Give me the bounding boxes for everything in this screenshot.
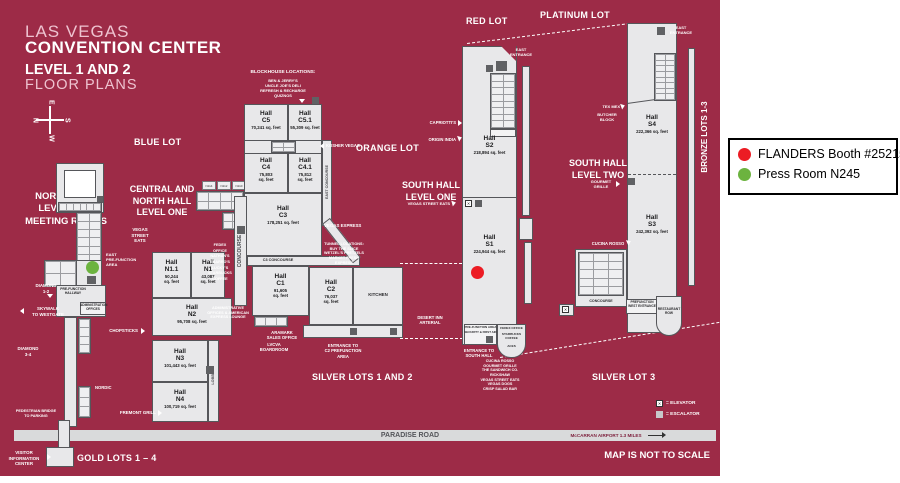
hall-c3-sqft: 178,251 sq. feet <box>246 221 320 226</box>
room-n114: N114 <box>202 181 216 190</box>
desert-inn-dash-bottom <box>400 338 463 339</box>
room-cell <box>273 148 283 152</box>
room-cell <box>609 262 622 269</box>
room-cell <box>504 75 515 81</box>
room-cell <box>492 115 503 121</box>
escalator-s3-left <box>628 178 635 185</box>
fedex-office-label: FEDEX OFFICE <box>497 327 526 331</box>
c1-service-rooms <box>254 316 288 327</box>
room-cell <box>273 143 283 147</box>
room-cell <box>80 337 89 344</box>
room-cell <box>656 72 665 77</box>
hall-n3-sqft: 101,443 sq. feet <box>152 364 208 369</box>
s3-s4-divider <box>628 174 676 175</box>
south-entrance-label: ENTRANCE TO SOUTH HALL <box>460 348 498 359</box>
room-n112: N112 <box>217 181 231 190</box>
hall-c4-1-sqft: 75,812 sq. feet <box>288 173 322 183</box>
room-cell <box>90 230 101 237</box>
desert-inn-dash-top <box>400 263 462 264</box>
room-cell <box>74 204 80 210</box>
capriottis-arrow-icon <box>458 120 462 126</box>
north-hall-corridor <box>64 317 77 427</box>
aramark-label: ARAMARK SALES OFFICE <box>262 330 302 341</box>
room-cell <box>90 214 101 221</box>
hall-s2-name: Hall S2 <box>462 136 517 150</box>
s1-s2-divider <box>462 197 517 198</box>
room-cell <box>580 254 593 261</box>
room-cell <box>492 95 503 101</box>
elevator-key-row: ✕ = ELEVATOR <box>656 400 695 407</box>
room-cell <box>666 66 675 71</box>
escalator-north-mid <box>87 276 96 284</box>
lvcva-label: LVCVA BOARDROOM <box>254 342 294 353</box>
blockhouse-arrow-icon <box>299 99 305 103</box>
texmex-label: TEX MEX <box>594 104 620 109</box>
booth-legend-box: FLANDERS Booth #25215 Press Room N245 <box>728 138 898 195</box>
hall-n2-sqft: 95,708 sq. feet <box>152 320 232 325</box>
gourmet-arrow-icon <box>616 181 620 187</box>
legend-row-booth: FLANDERS Booth #25215 <box>738 147 900 161</box>
north-hall-ballroom <box>64 170 96 198</box>
escalator-s2-top <box>486 65 493 72</box>
room-cell <box>504 88 515 94</box>
room-cell <box>504 108 515 114</box>
aces-label: ACES <box>497 345 526 349</box>
silver-lots12-label: SILVER LOTS 1 AND 2 <box>312 372 413 382</box>
east-entrance-s4-label: EAST ENTRANCE <box>666 25 696 35</box>
hall-c2-label: Hall C2 76,037 sq. feet <box>309 280 353 305</box>
hall-s3-label: Hall S3 242,392 sq. feet <box>627 215 677 235</box>
room-cell <box>666 61 675 66</box>
east-entrance-s2-label: EAST ENTRANCE <box>506 47 536 57</box>
visitor-center-label: VISITOR INFORMATION CENTER <box>4 450 44 467</box>
capriottis-label: CAPRIOTTI'S <box>422 120 456 125</box>
room-cell <box>504 102 515 108</box>
room-cell <box>504 121 515 127</box>
hall-n4-sqft: 100,719 sq. feet <box>152 405 208 410</box>
bronze-lots-label: BRONZE LOTS 1-3 <box>700 92 710 182</box>
room-cell <box>80 345 89 352</box>
hall-c5-1-name: Hall C5.1 <box>288 111 322 125</box>
map-background: LAS VEGAS CONVENTION CENTER LEVEL 1 AND … <box>0 0 720 476</box>
room-cell <box>594 279 607 286</box>
s1-bridge-upper <box>522 66 530 216</box>
room-cell <box>492 82 503 88</box>
diamond12-arrow-icon <box>47 294 53 298</box>
gold-lots-label: GOLD LOTS 1 – 4 <box>77 453 157 463</box>
c-mid-rooms <box>271 141 296 153</box>
butcher-block-label: BUTCHER BLOCK <box>594 112 620 122</box>
room-cell <box>666 78 675 83</box>
room-cell <box>94 204 100 210</box>
escalator-key-label: = ESCALATOR <box>666 412 700 417</box>
s3-concourse-label: CONCOURSE <box>579 299 623 303</box>
compass-n: N <box>30 115 39 125</box>
room-cell <box>504 95 515 101</box>
room-cell <box>266 318 275 325</box>
east-entrance-block-s2 <box>496 61 507 71</box>
room-cell <box>67 204 73 210</box>
nordic-label: NORDIC <box>95 385 119 390</box>
room-cell <box>594 262 607 269</box>
elevator-s3: ✕ <box>562 306 569 313</box>
flanders-booth-dot <box>471 266 484 279</box>
chopsticks-label: CHOPSTICKS <box>102 328 138 334</box>
room-cell <box>492 102 503 108</box>
diamond34-label: DIAMOND 3-4 <box>14 346 42 357</box>
hall-n3-label: Hall N3 101,443 sq. feet <box>152 349 208 369</box>
room-cell <box>198 193 208 201</box>
hall-s4-label: Hall S4 222,366 sq. feet <box>627 115 677 135</box>
hall-s2-sqft: 218,894 sq. feet <box>462 151 517 156</box>
hall-c4-1-name: Hall C4.1 <box>288 158 322 172</box>
escalator-key-row: = ESCALATOR <box>656 411 700 418</box>
south-hall2-title: SOUTH HALL LEVEL TWO <box>568 158 628 181</box>
escalator-c-bottom2 <box>390 328 397 335</box>
hall-c1-sqft: 91,605 sq. feet <box>252 289 309 299</box>
compass-e: E <box>46 97 55 107</box>
west-entrance-label: PREFUNCTION WEST ENTRANCE <box>626 301 658 308</box>
legend-row-press: Press Room N245 <box>738 167 860 181</box>
kosher-arrow-icon <box>320 143 324 149</box>
map-title-line2: CONVENTION CENTER <box>25 37 285 58</box>
elevator-key-label: = ELEVATOR <box>666 401 695 406</box>
room-cell <box>78 230 89 237</box>
chopsticks-arrow-icon <box>141 328 145 334</box>
pedestrian-bridge-label: PEDESTRIAN BRIDGE TO PARKING <box>14 409 58 418</box>
lobby-label: LOBBY <box>211 358 215 398</box>
escalator-c-bottom1 <box>350 328 357 335</box>
security-label: SECURITY & FIRST AID <box>464 331 497 334</box>
escalator-concourse <box>237 226 245 234</box>
blockhouse-title: BLOCKHOUSE LOCATIONS: <box>246 70 320 76</box>
escalator-icon <box>656 411 663 418</box>
room-cell <box>80 398 89 407</box>
hall-c5-1-sqft: 55,309 sq. feet <box>288 126 322 131</box>
hall-c4-label: Hall C4 75,803 sq. feet <box>244 158 288 183</box>
room-cell <box>656 66 665 71</box>
hall-n1-1-label: Hall N1.1 50,244 sq. feet <box>152 260 191 285</box>
c3-concourse-label: C3 CONCOURSE <box>252 258 304 262</box>
hall-s1-sqft: 224,944 sq. feet <box>462 250 517 255</box>
silver-lot3-label: SILVER LOT 3 <box>592 372 655 382</box>
room-cell <box>504 82 515 88</box>
room-cell <box>656 83 665 88</box>
restaurant-row-label: RESTAURANT ROW <box>656 308 682 316</box>
concourse-label: CONCOURSE <box>237 206 243 296</box>
s1-bridge-block <box>519 218 533 240</box>
blockhouse-items: BEN & JERRY'S UNCLE JOE'S DELI REFRESH &… <box>254 79 312 99</box>
hall-s1-name: Hall S1 <box>462 235 517 249</box>
central-hall-title: CENTRAL AND NORTH HALL LEVEL ONE <box>128 184 196 219</box>
room-cell <box>209 193 219 201</box>
c2-entrance-label: ENTRANCE TO C2 PREFUNCTION AREA <box>320 343 366 359</box>
hall-s2-label: Hall S2 218,894 sq. feet <box>462 136 517 156</box>
s2-meeting-rooms <box>490 73 516 129</box>
hall-c5-sqft: 70,241 sq. feet <box>244 126 288 131</box>
orange-lot-label: ORANGE LOT <box>356 143 419 153</box>
fremont-label: FREMONT GRILL <box>112 410 156 416</box>
booth-legend-label: FLANDERS Booth #25215 <box>758 147 900 161</box>
s4-meeting-rooms <box>654 53 676 101</box>
origin-india-label: ORIGIN INDIA <box>426 137 456 142</box>
hall-c2-sqft: 76,037 sq. feet <box>309 295 353 305</box>
east-entrance-block-s4 <box>657 27 665 35</box>
elevator-s1-top: ✕ <box>465 200 472 207</box>
room-cell <box>492 88 503 94</box>
hall-s1-label: Hall S1 224,944 sq. feet <box>462 235 517 255</box>
desert-inn-label: DESERT INN ARTERIAL <box>410 315 450 326</box>
admin-lounge-label: ADMINISTRATIVE OFFICES & AMERICAN EXPRES… <box>204 306 252 320</box>
starbucks-label: STARBUCKS COFFEE <box>497 333 526 340</box>
room-cell <box>580 287 593 294</box>
room-cell <box>609 254 622 261</box>
platinum-lot-label: PLATINUM LOT <box>540 10 610 20</box>
hall-c2-name: Hall C2 <box>309 280 353 294</box>
room-cell <box>492 108 503 114</box>
room-cell <box>492 75 503 81</box>
hall-c3-name: Hall C3 <box>246 206 320 220</box>
north-rooms-lower-a <box>78 318 91 354</box>
street-eats-stack-label: VEGAS STREET EATS <box>124 227 156 244</box>
airport-arrow-line <box>648 435 662 436</box>
escalator-s1-top <box>475 200 482 207</box>
compass-w: W <box>46 133 55 143</box>
vegas-express-label: VEGAS EXPRESS <box>324 223 364 229</box>
visitor-arrow-icon <box>47 454 51 460</box>
room-cell <box>666 55 675 60</box>
room-cell <box>609 287 622 294</box>
compass-s: S <box>62 115 71 125</box>
hall-c5-1-label: Hall C5.1 55,309 sq. feet <box>288 111 322 131</box>
north-rooms-strip <box>76 212 102 264</box>
restaurant-row-bulge <box>656 296 682 336</box>
kitchen-label: KITCHEN <box>353 292 403 297</box>
escalator-c5 <box>312 97 319 104</box>
room-cell <box>666 94 675 99</box>
east-prefunction-label: EAST PRE-FUNCTION AREA <box>106 252 144 267</box>
room-cell <box>609 270 622 277</box>
room-cell <box>666 72 675 77</box>
press-legend-label: Press Room N245 <box>758 167 860 181</box>
room-cell <box>90 222 101 229</box>
hall-s4-name: Hall S4 <box>627 115 677 129</box>
room-cell <box>81 204 87 210</box>
skywalk-arrow-icon <box>20 308 24 314</box>
room-cell <box>80 407 89 416</box>
room-cell <box>46 262 60 273</box>
room-cell <box>656 61 665 66</box>
room-cell <box>594 270 607 277</box>
room-cell <box>80 328 89 335</box>
room-cell <box>284 148 294 152</box>
hall-c4-1-label: Hall C4.1 75,812 sq. feet <box>288 158 322 183</box>
escalator-s1-bottom <box>486 336 493 343</box>
room-cell <box>492 121 503 127</box>
room-cell <box>504 115 515 121</box>
room-cell <box>580 262 593 269</box>
kosher-vegas-label: KOSHER VEGAS <box>326 143 362 148</box>
room-cell <box>666 89 675 94</box>
texmex-arrow-icon <box>620 102 626 109</box>
room-cell <box>78 238 89 245</box>
cucina-rosso-label: CUCINA ROSSO <box>590 241 626 246</box>
east-concourse-label: EAST CONCOURSE <box>325 147 329 217</box>
room-cell <box>594 254 607 261</box>
room-cell <box>224 214 232 221</box>
room-cell <box>80 388 89 397</box>
press-dot-icon <box>738 168 751 181</box>
booth-dot-icon <box>738 148 751 161</box>
elevator-icon: ✕ <box>656 400 663 407</box>
room-cell <box>209 202 219 210</box>
hall-s3-name: Hall S3 <box>627 215 677 229</box>
skywalk-label: SKYWALK TO WESTGATE <box>28 306 68 317</box>
silver3-boundary-dash <box>500 322 719 358</box>
room-cell <box>221 202 231 210</box>
room-cell <box>656 55 665 60</box>
room-cell <box>256 318 265 325</box>
airport-arrow-icon <box>662 432 666 438</box>
prefunction-area-label: PRE-FUNCTION AREA <box>464 326 497 329</box>
room-cell <box>656 89 665 94</box>
blue-lot-label: BLUE LOT <box>134 137 181 147</box>
tunnel-locations-label: TUNNEL LOCATIONS: BUY THE SLICE WETZEL'S… <box>320 242 368 266</box>
paradise-road-label: PARADISE ROAD <box>370 432 450 440</box>
hall-n3-name: Hall N3 <box>152 349 208 363</box>
room-cell <box>78 247 89 254</box>
hall-c3-label: Hall C3 178,251 sq. feet <box>246 206 320 226</box>
press-room-dot <box>86 261 99 274</box>
room-cell <box>609 279 622 286</box>
room-cell <box>656 78 665 83</box>
room-cell <box>87 204 93 210</box>
room-cell <box>224 222 232 229</box>
hall-c5-name: Hall C5 <box>244 111 288 125</box>
not-to-scale-label: MAP IS NOT TO SCALE <box>590 450 710 462</box>
hall-c1-label: Hall C1 91,605 sq. feet <box>252 274 309 299</box>
hall-n4-name: Hall N4 <box>152 390 208 404</box>
hall-s3-sqft: 242,392 sq. feet <box>627 230 677 235</box>
red-lot-label: RED LOT <box>466 16 508 26</box>
administration-offices-label: ADMINISTRATION OFFICES <box>80 304 106 311</box>
fremont-arrow-icon <box>158 410 162 416</box>
room-cell <box>60 204 66 210</box>
platinum-boundary-dash <box>467 23 630 44</box>
hall-c4-name: Hall C4 <box>244 158 288 172</box>
mccarran-airport-label: McCARRAN AIRPORT 1.3 MILES <box>566 433 646 439</box>
hall-n1-1-name: Hall N1.1 <box>152 260 191 274</box>
room-cell <box>198 202 208 210</box>
room-cell <box>78 222 89 229</box>
room-cell <box>90 247 101 254</box>
north-rooms-lower-b <box>78 386 91 418</box>
room-cell <box>277 318 286 325</box>
s1-bridge-lower <box>524 242 532 304</box>
room-cell <box>90 238 101 245</box>
s3-meeting-rooms <box>578 252 624 296</box>
room-cell <box>666 83 675 88</box>
lvcc-floor-plan-map: LAS VEGAS CONVENTION CENTER LEVEL 1 AND … <box>0 0 900 483</box>
hall-c5-label: Hall C5 70,241 sq. feet <box>244 111 288 131</box>
south-food-list: CUCINA ROSSO GOURMET GRILLE THE SANDWICH… <box>472 359 528 391</box>
room-cell <box>580 279 593 286</box>
gourmet-grille-label: GOURMET GRILLE <box>588 179 614 189</box>
hall-c4-sqft: 75,803 sq. feet <box>244 173 288 183</box>
prefunction-hallway-label: PRE-FUNCTION HALLWAY <box>58 288 88 296</box>
food-column-label: FEDEX OFFICE NATHAN'S SBARRO'S LUCKY'S S… <box>207 243 233 283</box>
room-cell <box>61 262 75 273</box>
map-title-line4: FLOOR PLANS <box>25 76 245 94</box>
hall-s4-sqft: 222,366 sq. feet <box>627 130 677 135</box>
diamond12-label: DIAMOND 1-2 <box>32 283 60 294</box>
room-cell <box>580 270 593 277</box>
hall-c1-name: Hall C1 <box>252 274 309 288</box>
hall-n1-1-sqft: 50,244 sq. feet <box>152 275 191 285</box>
room-cell <box>656 94 665 99</box>
street-eats-s1-label: VEGAS STREET EATS <box>406 201 450 206</box>
room-cell <box>594 287 607 294</box>
room-cell <box>284 143 294 147</box>
north-rooms-row <box>58 202 102 212</box>
room-cell <box>80 320 89 327</box>
room-cell <box>61 274 75 285</box>
s4-bridge-right <box>688 48 695 286</box>
room-cell <box>221 193 231 201</box>
room-cell <box>78 214 89 221</box>
hall-n4-label: Hall N4 100,719 sq. feet <box>152 390 208 410</box>
